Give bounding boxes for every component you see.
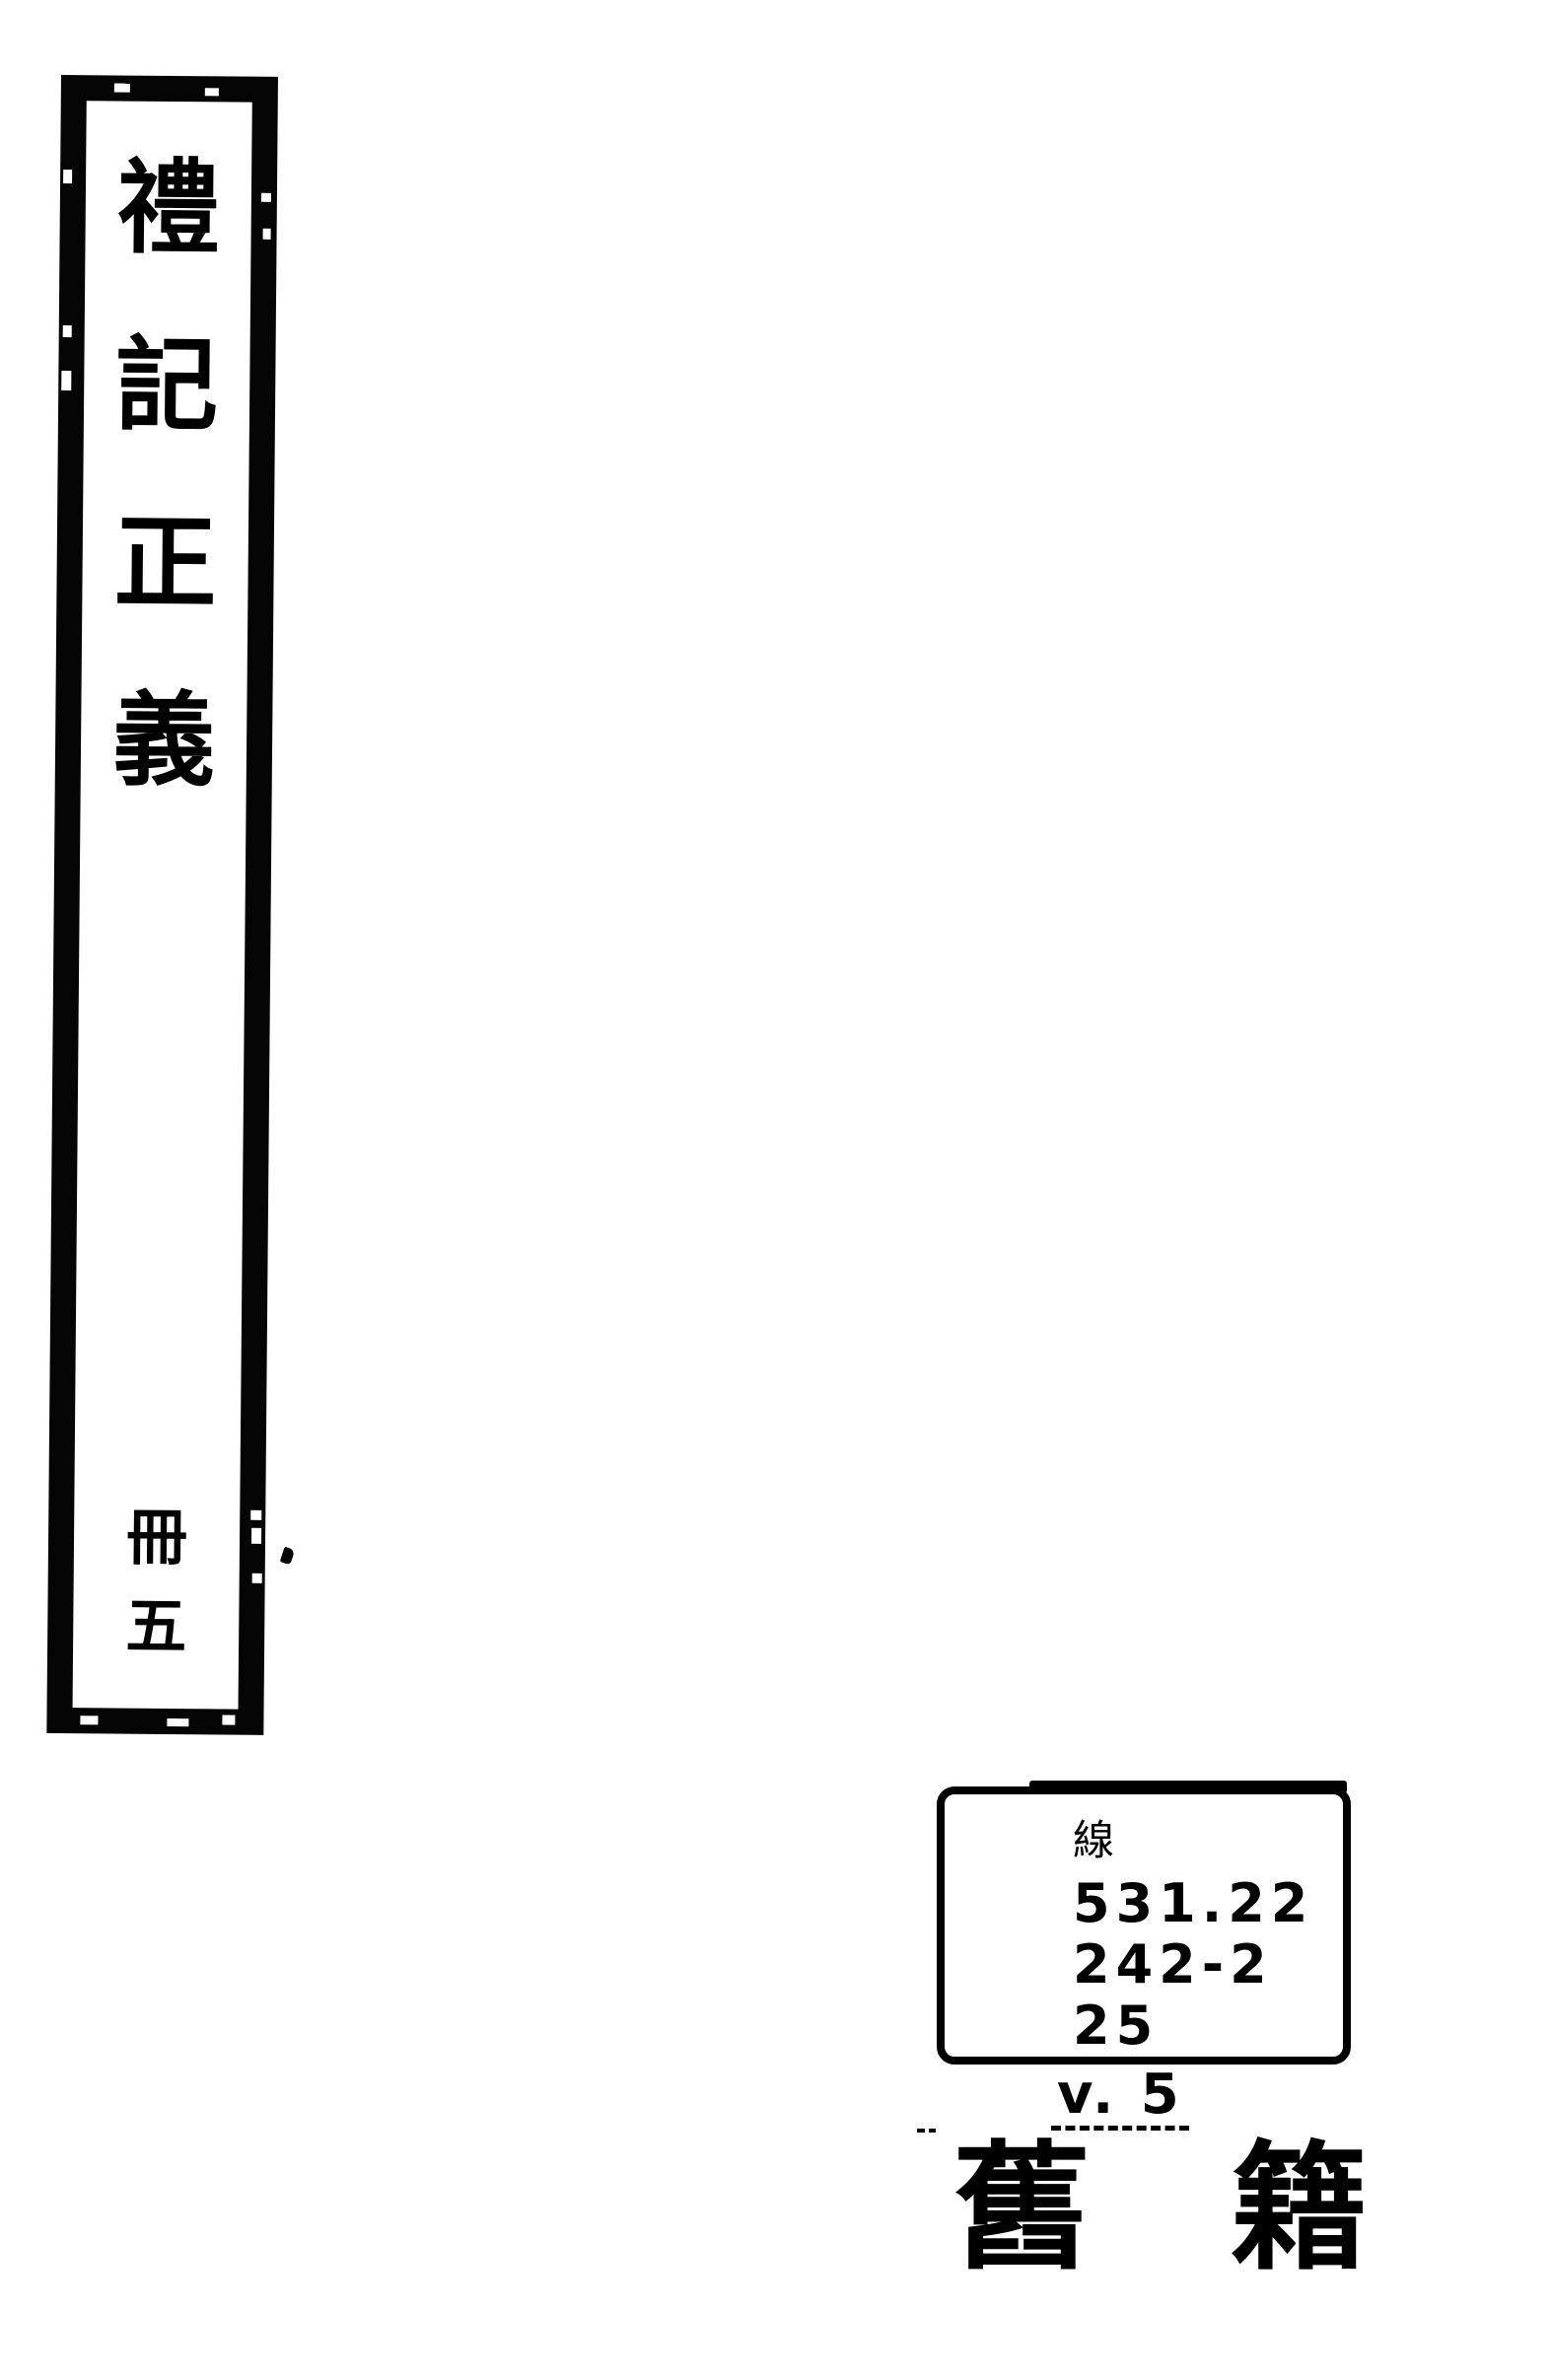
call-number-line-3: 25 [1073,1995,1333,2057]
scan-speck [63,325,72,337]
ink-blot-mark [280,1547,295,1566]
scan-speck [205,88,219,96]
scan-speck [114,83,130,92]
scan-speck [80,1715,98,1724]
call-number-class-char: 線 [1073,1818,1333,1863]
scan-speck [251,1528,261,1544]
call-number-label: 線 531.22 242-2 25 [937,1786,1351,2065]
spine-title-char-3: 正 [113,511,217,614]
spine-volume-char-1: 冊 [126,1507,188,1570]
scan-speck [250,1510,261,1520]
scan-speck [63,170,72,183]
scanned-book-cover-page: 禮 記 正 義 冊 五 線 531.22 242-2 25 v. 5 [0,0,1552,2380]
scan-speck [252,1574,262,1583]
scan-speck [61,371,71,390]
spine-title-char-2: 記 [115,333,219,437]
spine-volume-char-2: 五 [125,1596,187,1658]
spine-title: 禮 記 正 義 [81,101,252,792]
old-books-char-2: 籍 [1231,2135,1369,2281]
old-books-stamp: 舊 籍 [952,2135,1369,2281]
spine-volume-label: 冊 五 [73,1506,240,1657]
scan-speck [263,229,271,240]
volume-number-text: v. 5 [1051,2066,1189,2131]
call-number-line-2: 242-2 [1073,1934,1333,1995]
stray-dash-mark [917,2129,939,2134]
call-number-line-1: 531.22 [1073,1873,1333,1934]
book-spine-frame: 禮 記 正 義 冊 五 [46,75,278,1735]
spine-title-char-1: 禮 [116,157,220,260]
spine-title-char-4: 義 [112,688,216,792]
old-books-char-1: 舊 [952,2135,1091,2281]
scan-speck [167,1718,188,1726]
scan-speck [261,193,271,202]
scan-speck [222,1715,235,1724]
